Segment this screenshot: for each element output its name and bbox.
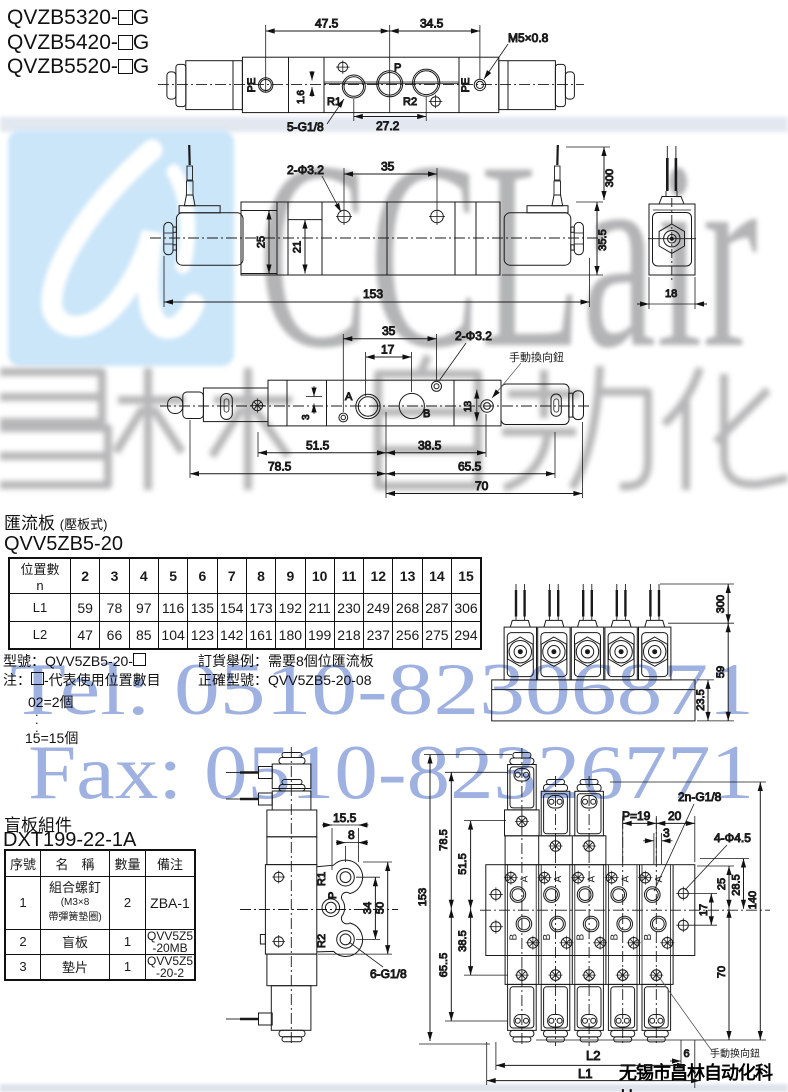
svg-text:L1: L1 bbox=[578, 1066, 592, 1081]
svg-text:38.5: 38.5 bbox=[457, 930, 469, 951]
svg-text:5-G1/8: 5-G1/8 bbox=[287, 120, 324, 134]
svg-text:R2: R2 bbox=[316, 934, 328, 948]
svg-text:17: 17 bbox=[381, 343, 395, 357]
svg-text:B: B bbox=[423, 408, 430, 420]
svg-text:51.5: 51.5 bbox=[306, 439, 330, 453]
svg-text:25: 25 bbox=[716, 878, 728, 890]
svg-text:2n-G1/8: 2n-G1/8 bbox=[678, 790, 722, 804]
svg-text:6: 6 bbox=[684, 1048, 690, 1060]
svg-text:13: 13 bbox=[463, 400, 474, 412]
svg-text:20: 20 bbox=[668, 809, 682, 823]
svg-text:35.5: 35.5 bbox=[597, 229, 609, 250]
svg-text:153: 153 bbox=[363, 287, 383, 301]
svg-text:23.5: 23.5 bbox=[695, 689, 707, 710]
svg-text:3: 3 bbox=[663, 826, 670, 840]
svg-text:78.5: 78.5 bbox=[438, 829, 450, 850]
svg-text:153: 153 bbox=[417, 888, 429, 906]
svg-text:4-Φ4.5: 4-Φ4.5 bbox=[714, 831, 751, 845]
svg-text:P: P bbox=[394, 62, 401, 74]
svg-text:1.6: 1.6 bbox=[296, 90, 307, 104]
svg-text:34.5: 34.5 bbox=[420, 17, 444, 31]
svg-text:P: P bbox=[327, 892, 339, 899]
svg-text:3: 3 bbox=[301, 414, 312, 420]
svg-text:17: 17 bbox=[698, 904, 710, 916]
svg-text:L2: L2 bbox=[586, 1048, 600, 1063]
svg-text:A: A bbox=[345, 391, 353, 403]
svg-text:手動换向鈕: 手動换向鈕 bbox=[710, 1047, 760, 1060]
svg-text:27.2: 27.2 bbox=[376, 119, 400, 133]
svg-text:2-Φ3.2: 2-Φ3.2 bbox=[287, 163, 324, 177]
svg-text:70: 70 bbox=[475, 479, 489, 493]
svg-text:手動換向鈕: 手動換向鈕 bbox=[509, 350, 564, 364]
svg-text:25: 25 bbox=[256, 236, 268, 248]
svg-text:34: 34 bbox=[362, 902, 374, 914]
svg-text:6-G1/8: 6-G1/8 bbox=[370, 967, 407, 981]
svg-text:15.5: 15.5 bbox=[333, 811, 357, 825]
svg-text:21: 21 bbox=[292, 241, 304, 253]
svg-text:59: 59 bbox=[715, 666, 727, 678]
svg-text:51.5: 51.5 bbox=[457, 853, 469, 874]
svg-text:38.5: 38.5 bbox=[418, 439, 442, 453]
svg-text:70: 70 bbox=[716, 966, 728, 978]
svg-text:300: 300 bbox=[715, 595, 727, 613]
svg-text:65.5: 65.5 bbox=[458, 459, 482, 473]
svg-text:35: 35 bbox=[381, 160, 395, 174]
svg-text:65..5: 65..5 bbox=[438, 953, 450, 977]
svg-text:PE: PE bbox=[460, 78, 472, 93]
svg-text:18: 18 bbox=[665, 288, 677, 300]
svg-text:R2: R2 bbox=[403, 96, 417, 108]
svg-text:47.5: 47.5 bbox=[315, 17, 339, 31]
svg-text:28.5: 28.5 bbox=[731, 874, 743, 895]
svg-text:M5×0.8: M5×0.8 bbox=[508, 31, 549, 45]
svg-text:140: 140 bbox=[747, 891, 759, 909]
svg-text:35: 35 bbox=[382, 324, 396, 338]
svg-text:2-Φ3.2: 2-Φ3.2 bbox=[455, 329, 492, 343]
svg-text:PE: PE bbox=[246, 78, 258, 93]
svg-text:300: 300 bbox=[604, 169, 616, 187]
svg-text:78.5: 78.5 bbox=[268, 459, 292, 473]
svg-text:R1: R1 bbox=[316, 872, 328, 886]
svg-text:P=19: P=19 bbox=[622, 809, 651, 823]
svg-text:50: 50 bbox=[375, 902, 387, 914]
svg-text:8: 8 bbox=[348, 828, 355, 842]
